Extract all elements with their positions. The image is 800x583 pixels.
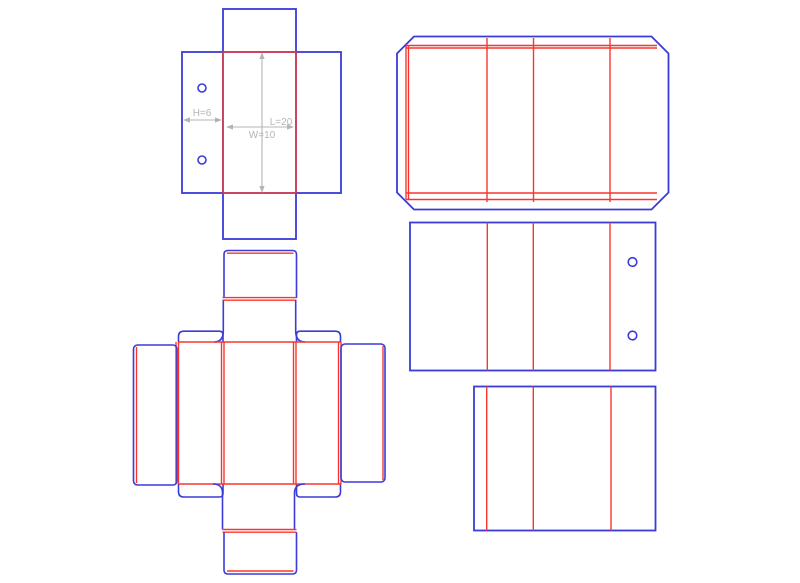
punch-hole (198, 156, 206, 164)
width-dimension-label: W=10 (249, 130, 276, 141)
dust-tab-top-left (179, 331, 224, 342)
panel-blank-with-holes-figure (408, 220, 658, 374)
punch-hole (628, 331, 637, 340)
top-flap-outline (223, 9, 296, 52)
arrowhead-right (215, 117, 222, 122)
blank-cut-outline (397, 37, 669, 210)
arrowhead-left (226, 124, 233, 129)
left-panel-outline (182, 52, 223, 193)
arrowhead-up (259, 52, 264, 59)
height-dimension-label: H=6 (193, 108, 212, 119)
dust-tab-bottom-left (179, 484, 224, 497)
top-tuck-flap-outline (224, 251, 297, 299)
small-panel-blank-figure (472, 384, 658, 534)
body-fold-lines (176, 342, 341, 484)
fold-lines (487, 387, 611, 531)
top-neck-left-cut (214, 300, 223, 342)
punch-hole (628, 258, 637, 267)
fold-lines (487, 223, 610, 371)
arrowhead-left (183, 117, 190, 122)
punch-hole (198, 84, 206, 92)
chamfered-wrap-blank-figure (396, 35, 671, 212)
bottom-tuck-flap-outline (224, 532, 297, 574)
dieline-drawing-canvas: H=6 L=20 W=10 (0, 0, 800, 583)
box-unfold-dimensioned-figure: H=6 L=20 W=10 (180, 7, 345, 242)
dust-tab-bottom-right (297, 484, 341, 497)
right-side-flap-outline (341, 344, 385, 482)
dust-tab-top-right (297, 331, 341, 342)
arrowhead-down (259, 186, 264, 193)
length-dimension-arrow (259, 52, 264, 193)
blank-cut-outline (474, 387, 656, 531)
right-panel-outline (296, 52, 341, 193)
fold-lines (406, 38, 657, 202)
left-side-flap-outline (134, 345, 178, 485)
bottom-flap-outline (223, 193, 296, 239)
bottom-neck-left-cut (213, 484, 223, 530)
full-cross-dieline-figure (129, 246, 391, 580)
